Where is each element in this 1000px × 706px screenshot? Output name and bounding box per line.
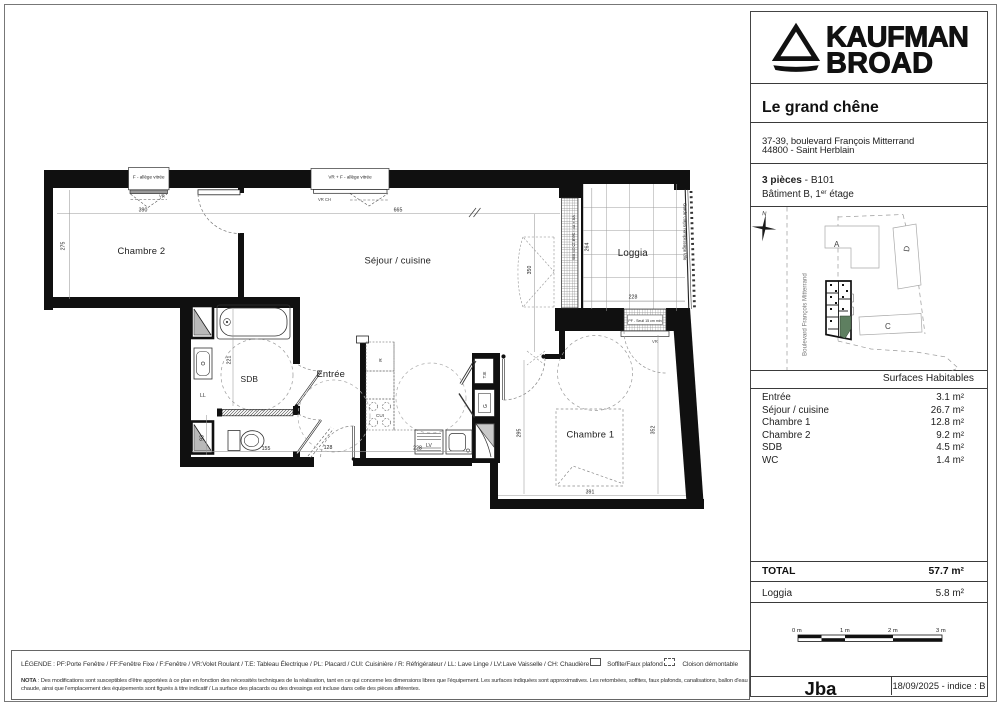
svg-text:SDB: SDB (241, 374, 259, 384)
svg-text:665: 665 (394, 208, 403, 214)
svg-text:93: 93 (200, 435, 206, 441)
svg-text:VR: VR (652, 339, 658, 344)
svg-text:BROAD: BROAD (826, 48, 933, 80)
svg-text:F - allège vitrée: F - allège vitrée (133, 174, 165, 179)
svg-text:VR + F - allège vitrée: VR + F - allège vitrée (328, 174, 372, 179)
svg-text:A: A (834, 240, 840, 249)
svg-text:3 m: 3 m (936, 628, 946, 634)
svg-text:155: 155 (262, 446, 271, 452)
svg-text:Loggia: Loggia (618, 248, 648, 259)
svg-text:Entrée: Entrée (317, 368, 346, 379)
svg-text:Séjour / cuisine: Séjour / cuisine (365, 255, 432, 266)
svg-text:Garde corps remplissage tôle: Garde corps remplissage tôle (683, 203, 688, 261)
svg-text:128: 128 (324, 445, 333, 451)
svg-text:T.E: T.E (482, 372, 488, 379)
svg-text:350: 350 (527, 266, 533, 275)
svg-text:G: G (483, 404, 489, 408)
svg-text:C: C (885, 322, 891, 331)
svg-text:VR + PF - Seuil 15 cm min: VR + PF - Seuil 15 cm min (572, 215, 576, 260)
svg-text:PF - Seuil 15 cm min: PF - Seuil 15 cm min (628, 319, 661, 323)
svg-text:352: 352 (651, 426, 657, 435)
svg-text:264: 264 (585, 243, 591, 252)
svg-text:LL: LL (200, 393, 206, 399)
svg-text:390: 390 (139, 208, 148, 214)
svg-text:LV: LV (426, 443, 432, 449)
svg-text:0 m: 0 m (792, 628, 802, 634)
svg-text:228: 228 (413, 446, 422, 452)
svg-text:2 m: 2 m (888, 628, 898, 634)
svg-text:Chambre 1: Chambre 1 (567, 429, 615, 440)
svg-text:VR CH: VR CH (318, 197, 331, 202)
svg-text:Boulevard François Mitterrand: Boulevard François Mitterrand (802, 273, 809, 356)
svg-text:R: R (378, 358, 384, 362)
svg-text:275: 275 (61, 242, 67, 251)
svg-text:VR: VR (159, 194, 165, 199)
svg-text:391: 391 (586, 490, 595, 496)
svg-text:295: 295 (517, 429, 523, 438)
svg-text:N: N (762, 211, 767, 217)
svg-text:221: 221 (227, 356, 233, 365)
svg-text:228: 228 (629, 295, 638, 301)
svg-text:1 m: 1 m (840, 628, 850, 634)
svg-text:CUI: CUI (376, 413, 384, 418)
svg-text:Chambre 2: Chambre 2 (118, 245, 166, 256)
